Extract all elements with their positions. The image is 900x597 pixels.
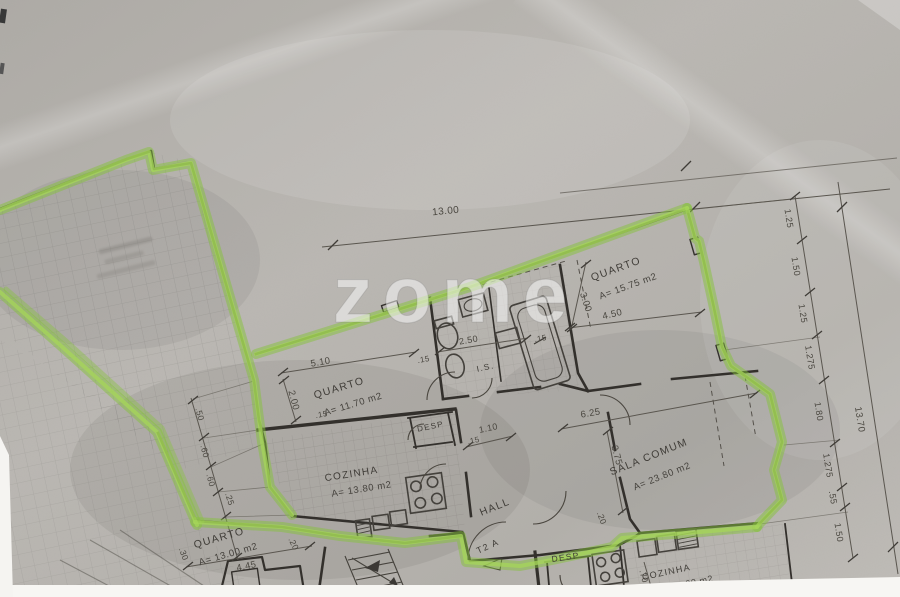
scanned-floorplan-page: QUARTO A= 15.75 m2 QUARTO A= 11.70 m2 SA… [0,0,900,597]
dim-right-chain-6: .55 [827,490,839,505]
zome-watermark: zome [333,250,578,339]
floor-plan-scan: QUARTO A= 15.75 m2 QUARTO A= 11.70 m2 SA… [0,0,900,597]
